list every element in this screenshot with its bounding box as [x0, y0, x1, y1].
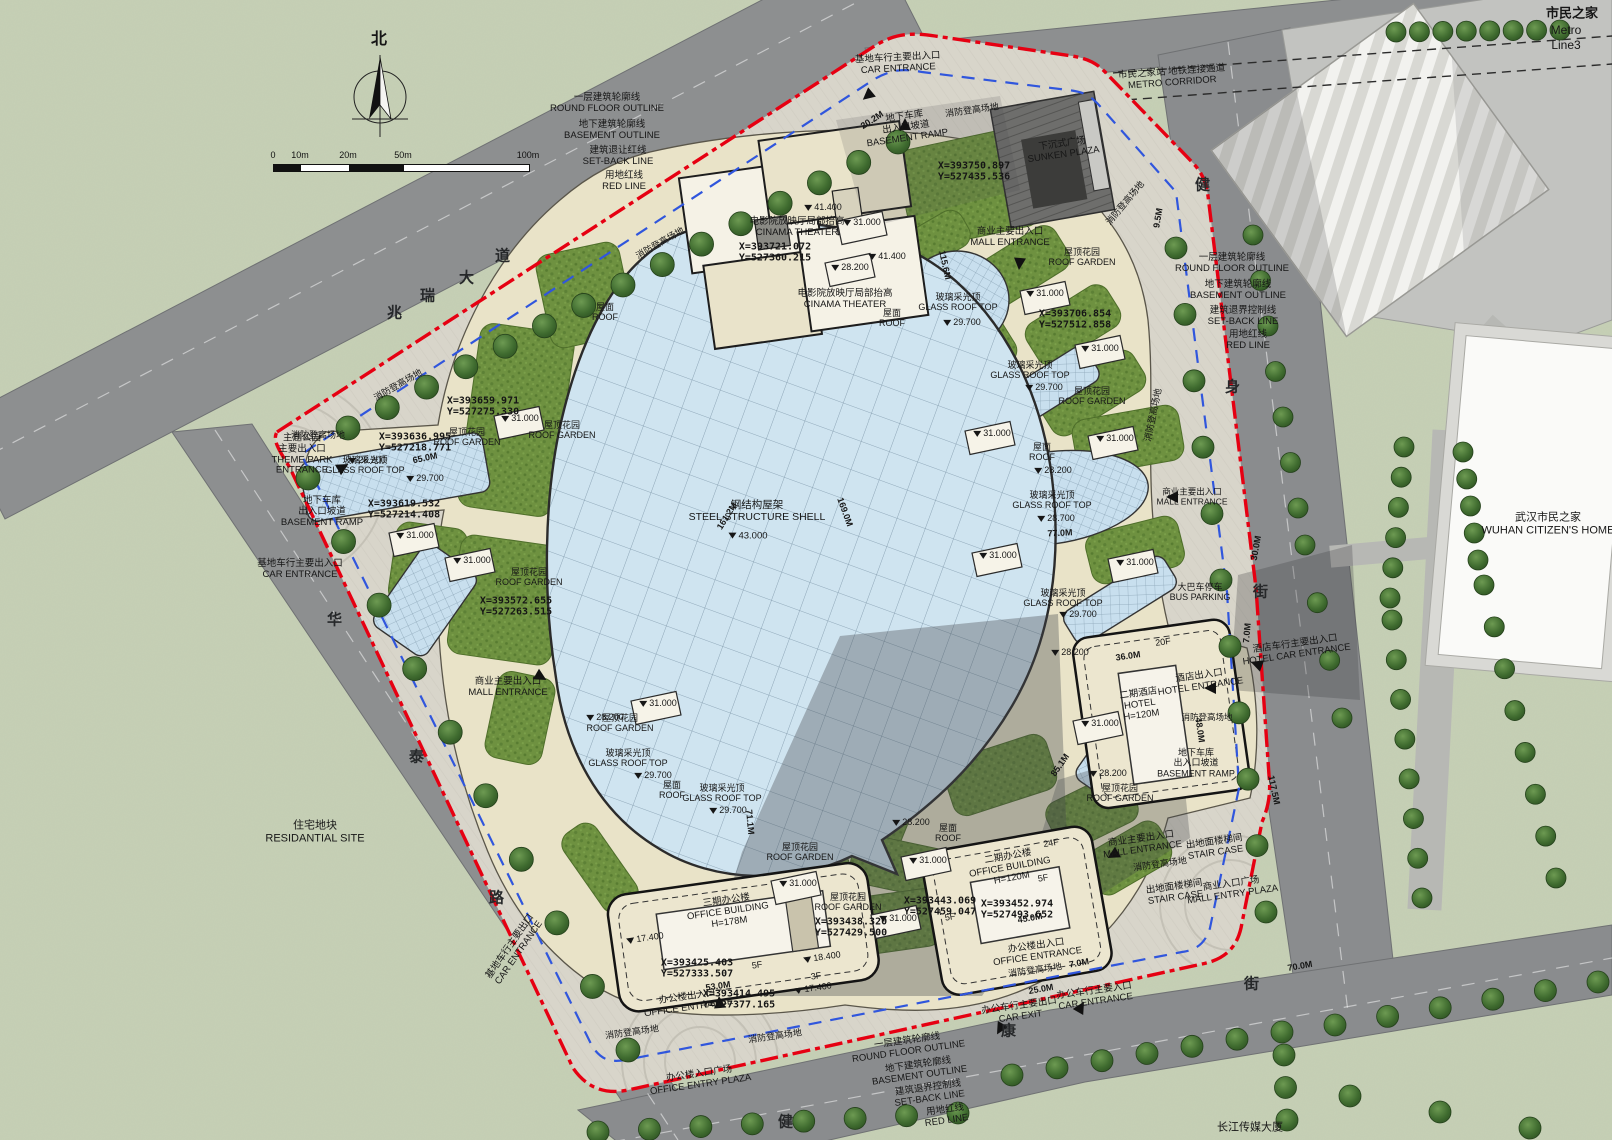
- tree-icon: [793, 1110, 815, 1132]
- scale-tick: 50m: [394, 150, 412, 160]
- tree-icon: [1228, 702, 1250, 724]
- scale-tick: 100m: [517, 150, 540, 160]
- tree-icon: [545, 911, 569, 935]
- tree-icon: [1271, 1021, 1293, 1043]
- tree-icon: [1386, 650, 1406, 670]
- tree-icon: [1307, 593, 1327, 613]
- tree-icon: [616, 1038, 640, 1062]
- tree-icon: [1383, 558, 1403, 578]
- tree-icon: [1332, 708, 1352, 728]
- tree-icon: [611, 273, 635, 297]
- site-plan-map: [0, 0, 1612, 1140]
- tree-icon: [1288, 498, 1308, 518]
- tree-icon: [572, 293, 596, 317]
- tree-icon: [1550, 20, 1570, 40]
- tree-icon: [1192, 436, 1214, 458]
- tree-icon: [1201, 503, 1223, 525]
- tree-icon: [1429, 1101, 1451, 1123]
- tree-icon: [1468, 550, 1488, 570]
- tree-icon: [1525, 784, 1545, 804]
- citizens-home-building: [1425, 323, 1612, 682]
- tree-icon: [1295, 535, 1315, 555]
- tree-icon: [1281, 453, 1301, 473]
- tree-icon: [474, 784, 498, 808]
- tree-icon: [1165, 237, 1187, 259]
- scale-tick: 20m: [339, 150, 357, 160]
- tree-icon: [1324, 1014, 1346, 1036]
- tree-icon: [690, 1116, 712, 1138]
- tree-icon: [1183, 370, 1205, 392]
- tree-icon: [638, 1118, 660, 1140]
- tree-icon: [454, 355, 478, 379]
- tree-icon: [1461, 496, 1481, 516]
- tree-icon: [509, 847, 533, 871]
- tree-icon: [1474, 575, 1494, 595]
- tree-icon: [1181, 1035, 1203, 1057]
- tree-icon: [886, 130, 910, 154]
- tree-icon: [1391, 467, 1411, 487]
- tree-icon: [1174, 303, 1196, 325]
- tree-icon: [1251, 271, 1271, 291]
- tree-icon: [1273, 1044, 1295, 1066]
- tree-icon: [1515, 742, 1535, 762]
- tree-icon: [650, 253, 674, 277]
- site-plan-canvas: 北 0 10m 20m 50m 100m 一层建筑轮廓线ROUND FLOOR …: [0, 0, 1612, 1140]
- tree-icon: [1412, 888, 1432, 908]
- tree-icon: [1495, 659, 1515, 679]
- scale-segment: [301, 165, 349, 171]
- scale-segment: [404, 165, 529, 171]
- scale-tick: 10m: [291, 150, 309, 160]
- scale-bar: 0 10m 20m 50m 100m: [273, 150, 528, 174]
- tree-icon: [1399, 769, 1419, 789]
- tree-icon: [1457, 469, 1477, 489]
- tree-icon: [690, 232, 714, 256]
- tree-icon: [1001, 1064, 1023, 1086]
- tree-icon: [415, 375, 439, 399]
- tree-icon: [1388, 497, 1408, 517]
- tree-icon: [1246, 835, 1268, 857]
- tree-icon: [1391, 689, 1411, 709]
- tree-icon: [1091, 1050, 1113, 1072]
- tree-icon: [367, 593, 391, 617]
- tree-icon: [438, 720, 462, 744]
- tree-icon: [1320, 650, 1340, 670]
- tree-icon: [1409, 22, 1429, 42]
- tree-icon: [1339, 1085, 1361, 1107]
- tree-icon: [1408, 848, 1428, 868]
- tree-icon: [1386, 528, 1406, 548]
- compass-needle-icon: [369, 57, 380, 119]
- tree-icon: [1266, 362, 1286, 382]
- tree-icon: [1275, 1077, 1297, 1099]
- tree-icon: [1258, 316, 1278, 336]
- scale-tick: 0: [270, 150, 275, 160]
- tree-icon: [1255, 901, 1277, 923]
- tree-icon: [1219, 635, 1241, 657]
- tree-icon: [375, 396, 399, 420]
- tree-icon: [1527, 20, 1547, 40]
- tree-icon: [1429, 997, 1451, 1019]
- tree-icon: [1243, 225, 1263, 245]
- tree-icon: [1237, 768, 1259, 790]
- tree-icon: [1453, 442, 1473, 462]
- tree-icon: [532, 314, 556, 338]
- tree-icon: [1546, 868, 1566, 888]
- tree-icon: [1484, 617, 1504, 637]
- tree-icon: [1226, 1028, 1248, 1050]
- tree-icon: [403, 657, 427, 681]
- tree-icon: [1386, 22, 1406, 42]
- tree-icon: [847, 150, 871, 174]
- tree-icon: [947, 1102, 969, 1124]
- tree-icon: [1433, 21, 1453, 41]
- tree-icon: [1503, 21, 1523, 41]
- tree-icon: [1046, 1057, 1068, 1079]
- tree-icon: [1534, 980, 1556, 1002]
- tree-icon: [296, 466, 320, 490]
- tree-icon: [1377, 1005, 1399, 1027]
- tree-icon: [587, 1121, 609, 1140]
- tree-icon: [1273, 407, 1293, 427]
- scale-segment: [349, 165, 404, 171]
- tree-icon: [1210, 569, 1232, 591]
- tree-icon: [1380, 588, 1400, 608]
- office-building-2: [920, 824, 1115, 998]
- tree-icon: [1464, 523, 1484, 543]
- tree-icon: [332, 530, 356, 554]
- tree-icon: [1480, 21, 1500, 41]
- tree-icon: [1456, 21, 1476, 41]
- tree-icon: [1505, 701, 1525, 721]
- tree-icon: [336, 416, 360, 440]
- tree-icon: [1536, 826, 1556, 846]
- tree-icon: [1482, 988, 1504, 1010]
- tree-icon: [1382, 610, 1402, 630]
- tree-icon: [844, 1107, 866, 1129]
- tree-icon: [1395, 729, 1415, 749]
- tree-icon: [741, 1113, 763, 1135]
- tree-icon: [768, 191, 792, 215]
- tree-icon: [1136, 1043, 1158, 1065]
- tree-icon: [729, 212, 753, 236]
- tree-icon: [896, 1105, 918, 1127]
- tree-icon: [1394, 437, 1414, 457]
- tree-icon: [1519, 1117, 1541, 1139]
- tree-icon: [807, 171, 831, 195]
- tree-icon: [1403, 809, 1423, 829]
- scale-segment: [274, 165, 301, 171]
- tree-icon: [1587, 971, 1609, 993]
- tree-icon: [493, 334, 517, 358]
- north-label: 北: [371, 31, 387, 49]
- tree-icon: [580, 974, 604, 998]
- tree-icon: [1276, 1109, 1298, 1131]
